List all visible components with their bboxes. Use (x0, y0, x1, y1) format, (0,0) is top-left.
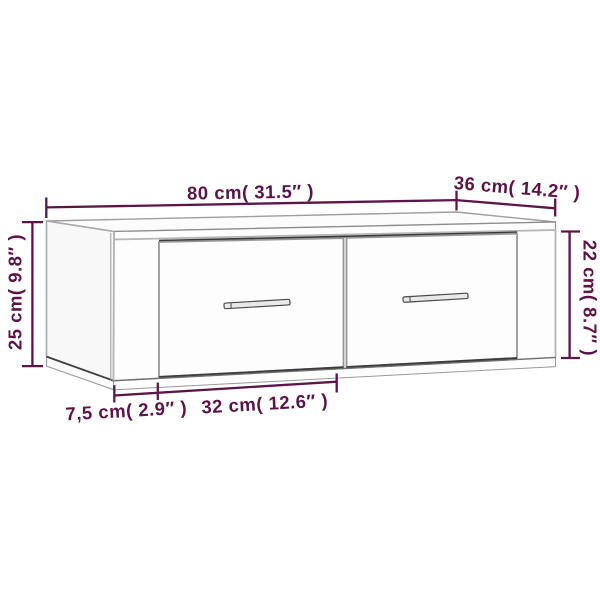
svg-text:80 cm( 31.5″ ): 80 cm( 31.5″ ) (187, 180, 314, 203)
svg-text:25 cm( 9.8″ ): 25 cm( 9.8″ ) (5, 234, 26, 350)
svg-text:22 cm( 8.7″ ): 22 cm( 8.7″ ) (580, 240, 600, 356)
